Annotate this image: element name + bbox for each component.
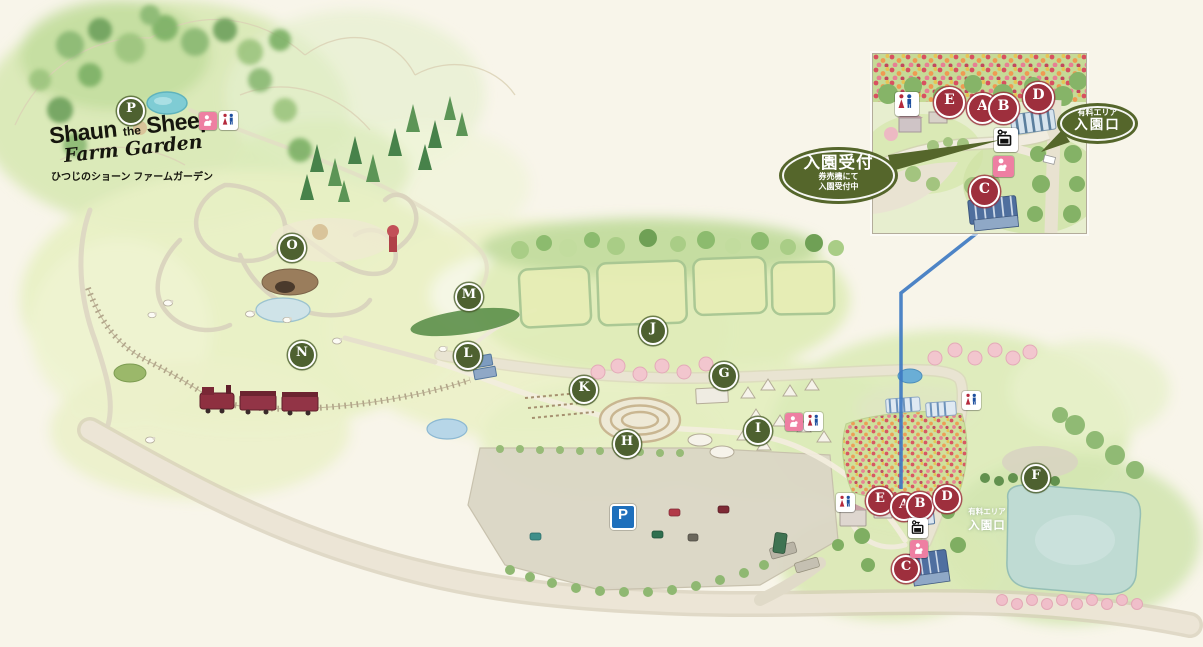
nursing-room-icon [785,413,803,431]
parking-icon: P [610,504,636,530]
inset-marker-c: C [969,176,1000,207]
map-marker-c: C [892,555,920,583]
toilet-icon [962,391,981,410]
entrance-gate-label: 入園口 [959,517,1015,533]
map-marker-d: D [933,485,961,513]
map-marker-n: N [288,341,316,369]
map-marker-k: K [570,376,598,404]
inset-marker-e: E [934,87,965,118]
map-marker-g: G [710,362,738,390]
entrance-gate-label: 入園口 [1057,118,1138,133]
farm-garden-map: Shaun the Sheep Farm Garden ひつじのショーン ファー… [0,0,1203,647]
paid-entrance-map-label: 有料エリア 入園口 [959,506,1015,533]
paid-entrance-callout: 有料エリア 入園口 [1057,103,1138,144]
nursing-room-icon [199,112,217,130]
map-marker-m: M [455,283,483,311]
toilet-icon [219,111,238,130]
inset-marker-d: D [1023,82,1054,113]
inset-marker-b: B [988,93,1019,124]
hedge-maze [600,398,680,442]
map-marker-b: B [906,492,934,520]
logo-subtitle-jp: ひつじのショーン ファームガーデン [46,168,218,183]
map-marker-f: F [1022,464,1050,492]
ticket-machine-icon [994,128,1018,152]
toilet-icon [804,412,823,431]
nursing-room-icon [910,540,928,558]
toilet-icon [895,92,919,116]
map-marker-l: L [454,342,482,370]
reception-callout: 入園受付 券売機にて 入園受付中 [779,147,898,204]
reception-title: 入園受付 [779,154,898,172]
map-marker-j: J [639,317,667,345]
toilet-icon [836,493,855,512]
map-marker-o: O [278,234,306,262]
entrance-inset-map: E A B D C [872,53,1087,234]
map-marker-h: H [613,430,641,458]
paid-area-label: 有料エリア [959,506,1015,517]
nursing-room-icon [993,156,1014,177]
park-logo: Shaun the Sheep Farm Garden ひつじのショーン ファー… [46,116,218,183]
ticket-machine-icon [908,518,928,538]
map-marker-i: I [744,417,772,445]
map-marker-p: P [117,97,145,125]
reception-note-2: 入園受付中 [779,182,898,192]
reception-note-1: 券売機にて [779,172,898,182]
